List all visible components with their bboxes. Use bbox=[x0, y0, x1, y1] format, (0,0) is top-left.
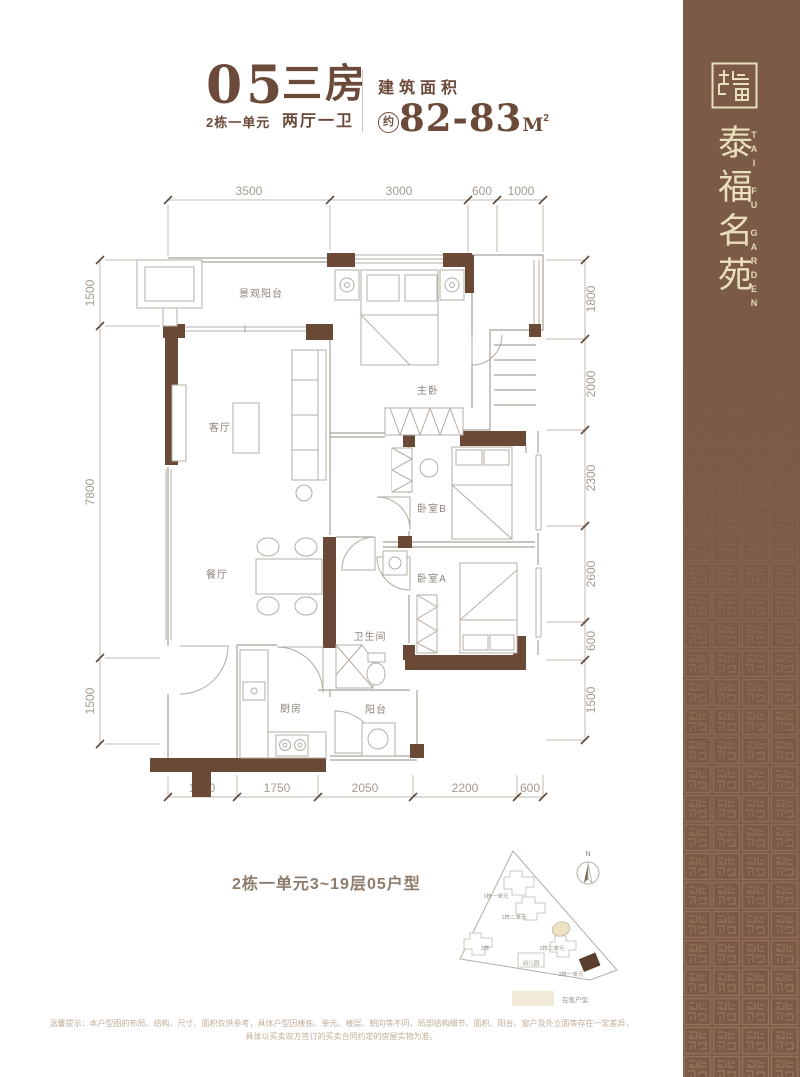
bathroom-fixtures bbox=[336, 551, 407, 688]
dim-right-1: 1800 bbox=[584, 285, 598, 312]
dim-top-3: 600 bbox=[472, 185, 492, 198]
floorplan-caption: 2栋一单元3~19层05户型 bbox=[232, 870, 421, 894]
site-label-2: 1栋二单元 bbox=[501, 913, 527, 921]
dim-bottom-5: 600 bbox=[520, 781, 540, 795]
room-label-kitchen: 厨房 bbox=[280, 702, 302, 715]
dim-right-4: 2600 bbox=[584, 560, 598, 587]
site-label-1: 1栋一单元 bbox=[483, 892, 509, 900]
coffee-table bbox=[233, 403, 259, 453]
approx-circle-badge: 约 bbox=[378, 112, 399, 133]
floorplan-drawing: 3500 3000 600 1000 1500 1750 2050 2200 6… bbox=[80, 185, 610, 810]
unit-number: 05 bbox=[206, 60, 286, 112]
master-bed bbox=[335, 270, 464, 365]
dim-bottom-4: 2200 bbox=[452, 781, 479, 795]
dim-right-5: 600 bbox=[584, 631, 598, 651]
room-label-balcony: 阳台 bbox=[365, 703, 387, 716]
legend-label: 在售户型 bbox=[562, 995, 589, 1004]
north-letter: N bbox=[585, 851, 590, 858]
dim-bottom-2: 1750 bbox=[264, 781, 291, 795]
area-label: 建筑面积 bbox=[378, 74, 462, 98]
site-buildings bbox=[464, 871, 600, 971]
disclaimer: 温馨提示：本户型图的布局、结构、尺寸、面积仅供参考，具体户型因楼栋、单元、楼层、… bbox=[0, 1017, 683, 1043]
dim-bottom-3: 2050 bbox=[352, 781, 379, 795]
dim-top-2: 3000 bbox=[386, 185, 413, 198]
brand-name-en: TAI FU GARDEN bbox=[749, 130, 759, 312]
dim-left-1: 1500 bbox=[83, 279, 97, 306]
site-label-3: 3栋 bbox=[481, 944, 490, 952]
layout-subtitle: 两厅一卫 bbox=[282, 107, 354, 131]
disclaimer-line-1: 温馨提示：本户型图的布局、结构、尺寸、面积仅供参考，具体户型因楼栋、单元、楼层、… bbox=[0, 1017, 683, 1030]
fu-logo-icon bbox=[711, 62, 758, 109]
dim-left-2: 7800 bbox=[83, 478, 97, 505]
balcony-planter-box bbox=[137, 260, 202, 326]
living-sofa bbox=[292, 350, 326, 501]
site-label-kindergarten: 幼儿园 bbox=[523, 959, 540, 967]
area-unit: M bbox=[522, 114, 543, 136]
dim-right-2: 2000 bbox=[584, 370, 598, 397]
disclaimer-line-2: 具体以买卖双方签订的买卖合同约定的房屋实物为准。 bbox=[0, 1030, 683, 1043]
dining-table-set bbox=[256, 538, 322, 615]
room-label-bathroom: 卫生间 bbox=[354, 630, 387, 643]
room-label-master: 主卧 bbox=[417, 384, 439, 397]
site-label-4: 2栋二单元 bbox=[539, 944, 565, 952]
dim-left-3: 1500 bbox=[83, 687, 97, 714]
unit-block-label: 2栋一单元 bbox=[206, 112, 270, 131]
siteplan-map: 1栋一单元 1栋二单元 3栋 2栋二单元 幼儿园 2栋一单元 N 在售户型 bbox=[440, 843, 670, 1018]
area-unit-sup: 2 bbox=[543, 113, 549, 124]
north-compass-icon: N bbox=[577, 851, 599, 884]
area-value-row: 约82-83M2 bbox=[378, 96, 549, 140]
master-wardrobe bbox=[385, 408, 463, 435]
dim-right-6: 1500 bbox=[584, 686, 598, 713]
room-label-bedroom-b: 卧室B bbox=[417, 502, 447, 515]
dim-top-1: 3500 bbox=[236, 185, 263, 198]
room-label-bedroom-a: 卧室A bbox=[417, 572, 447, 585]
dim-top-4: 1000 bbox=[508, 185, 535, 198]
layout-title: 三房 bbox=[282, 64, 368, 104]
brand-sidebar: 泰福名苑 TAI FU GARDEN bbox=[683, 0, 800, 1077]
dim-right-3: 2300 bbox=[584, 464, 598, 491]
site-label-highlighted: 2栋一单元 bbox=[558, 970, 584, 978]
room-label-dining: 餐厅 bbox=[206, 568, 228, 581]
legend-swatch bbox=[512, 991, 554, 1006]
fu-pattern-texture bbox=[683, 330, 800, 1077]
tv-cabinet bbox=[172, 385, 186, 461]
site-legend: 在售户型 bbox=[512, 991, 589, 1006]
room-label-living: 客厅 bbox=[209, 421, 231, 434]
room-label-view-balcony: 景观阳台 bbox=[239, 287, 283, 300]
header-divider bbox=[362, 70, 363, 132]
area-value: 82-83 bbox=[399, 96, 522, 140]
washing-machine bbox=[362, 723, 395, 756]
